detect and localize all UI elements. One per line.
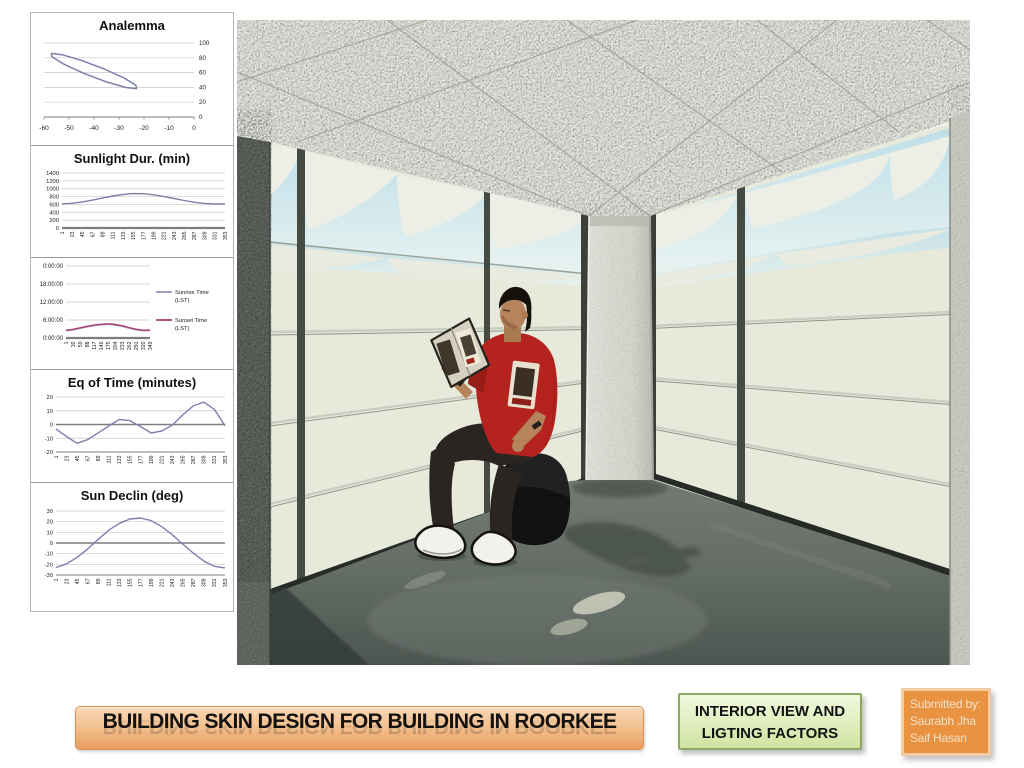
svg-text:0:00:00: 0:00:00 <box>43 336 64 342</box>
svg-text:10: 10 <box>47 409 53 415</box>
svg-text:0:00:00: 0:00:00 <box>43 264 64 270</box>
submitted-box: Submitted by: Saurabh Jha Saif Hasan <box>901 688 991 756</box>
svg-text:177: 177 <box>141 231 147 240</box>
svg-text:-50: -50 <box>64 125 74 132</box>
svg-text:111: 111 <box>111 231 117 239</box>
svg-text:221: 221 <box>162 231 168 240</box>
chart-card-sunrise-sunset: 0:00:006:00:0012:00:0018:00:000:00:00130… <box>31 258 233 370</box>
svg-text:400: 400 <box>49 210 59 216</box>
svg-text:221: 221 <box>159 455 165 464</box>
submitted-name-1: Saurabh Jha <box>910 713 984 730</box>
svg-text:0: 0 <box>192 125 196 132</box>
svg-text:353: 353 <box>223 231 229 240</box>
svg-text:331: 331 <box>212 455 218 464</box>
svg-text:18:00:00: 18:00:00 <box>40 282 64 288</box>
svg-text:-60: -60 <box>39 125 49 132</box>
svg-text:(LST): (LST) <box>175 298 190 304</box>
shirt-print <box>507 360 539 409</box>
svg-text:353: 353 <box>223 578 229 587</box>
chart-title-eq-of-time: Eq of Time (minutes) <box>31 370 233 390</box>
chart-title-analemma: Analemma <box>31 13 233 33</box>
svg-text:-30: -30 <box>114 125 124 132</box>
svg-text:199: 199 <box>151 231 157 240</box>
svg-text:221: 221 <box>159 578 165 587</box>
svg-text:-20: -20 <box>45 450 53 456</box>
svg-text:20: 20 <box>47 395 53 401</box>
svg-text:Sunrise Time: Sunrise Time <box>175 290 209 296</box>
svg-text:199: 199 <box>149 578 155 587</box>
svg-text:1: 1 <box>54 578 60 581</box>
svg-text:133: 133 <box>117 578 123 587</box>
svg-text:-30: -30 <box>45 573 53 579</box>
svg-text:111: 111 <box>107 455 113 463</box>
svg-text:0: 0 <box>199 114 203 121</box>
chart-title-sunlight: Sunlight Dur. (min) <box>31 146 233 166</box>
svg-text:88: 88 <box>85 341 91 347</box>
svg-text:331: 331 <box>212 578 218 587</box>
svg-text:0: 0 <box>50 541 53 547</box>
svg-text:-20: -20 <box>139 125 149 132</box>
svg-text:45: 45 <box>80 231 86 237</box>
svg-text:23: 23 <box>70 231 76 237</box>
sun-declination-chart: -30-20-100102030123456789111133155177199… <box>31 503 233 607</box>
svg-text:309: 309 <box>202 578 208 587</box>
sunlight-duration-chart: 0200400600800100012001400123456789111133… <box>31 166 233 258</box>
svg-text:45: 45 <box>75 578 81 584</box>
svg-text:155: 155 <box>128 455 134 464</box>
svg-text:175: 175 <box>106 341 112 350</box>
svg-text:1: 1 <box>64 341 70 344</box>
analemma-chart: 020406080100-60-50-40-30-20-100 <box>31 33 233 146</box>
svg-text:67: 67 <box>85 455 91 461</box>
svg-text:1200: 1200 <box>46 179 59 185</box>
svg-text:1: 1 <box>60 231 66 234</box>
svg-text:177: 177 <box>138 578 144 587</box>
svg-text:23: 23 <box>64 578 70 584</box>
svg-text:309: 309 <box>202 231 208 240</box>
svg-text:353: 353 <box>223 455 229 464</box>
svg-text:291: 291 <box>134 341 140 350</box>
presentation-slide: Analemma 020406080100-60-50-40-30-20-100… <box>0 0 1024 768</box>
svg-text:349: 349 <box>148 341 154 350</box>
svg-text:800: 800 <box>49 195 59 201</box>
svg-text:30: 30 <box>47 509 53 515</box>
charts-sidebar: Analemma 020406080100-60-50-40-30-20-100… <box>30 12 234 612</box>
svg-text:89: 89 <box>96 578 102 584</box>
sunrise-sunset-chart: 0:00:006:00:0012:00:0018:00:000:00:00130… <box>31 258 233 368</box>
svg-text:-40: -40 <box>89 125 99 132</box>
svg-text:(LST): (LST) <box>175 326 190 332</box>
svg-text:287: 287 <box>191 455 197 464</box>
svg-text:200: 200 <box>49 218 59 224</box>
svg-text:20: 20 <box>47 520 53 526</box>
svg-text:199: 199 <box>149 455 155 464</box>
chart-title-sun-declination: Sun Declin (deg) <box>31 483 233 503</box>
caption-line-1: INTERIOR VIEW AND <box>680 701 860 723</box>
svg-text:265: 265 <box>181 578 187 587</box>
svg-text:6:00:00: 6:00:00 <box>43 318 64 324</box>
chart-card-eq-of-time: Eq of Time (minutes) -20-100102012345678… <box>31 370 233 483</box>
svg-text:30: 30 <box>71 341 77 347</box>
svg-text:1: 1 <box>54 455 60 458</box>
svg-text:243: 243 <box>170 578 176 587</box>
svg-text:10: 10 <box>47 530 53 536</box>
chart-card-sun-declination: Sun Declin (deg) -30-20-1001020301234567… <box>31 483 233 607</box>
svg-text:331: 331 <box>213 231 219 240</box>
svg-text:-10: -10 <box>45 436 53 442</box>
svg-text:100: 100 <box>199 40 210 47</box>
svg-text:287: 287 <box>192 231 198 240</box>
svg-text:20: 20 <box>199 99 206 106</box>
svg-text:0: 0 <box>56 226 59 232</box>
svg-text:233: 233 <box>120 341 126 350</box>
right-corner-wall <box>950 112 970 665</box>
chart-card-analemma: Analemma 020406080100-60-50-40-30-20-100 <box>31 13 233 146</box>
svg-text:155: 155 <box>128 578 134 587</box>
svg-text:243: 243 <box>172 231 178 240</box>
eq-of-time-chart: -20-100102012345678911113315517719922124… <box>31 390 233 483</box>
svg-text:89: 89 <box>96 455 102 461</box>
svg-text:146: 146 <box>99 341 105 350</box>
mullion <box>297 148 305 586</box>
svg-text:45: 45 <box>75 455 81 461</box>
svg-text:155: 155 <box>131 231 137 240</box>
svg-text:1000: 1000 <box>46 187 59 193</box>
svg-text:262: 262 <box>127 341 133 350</box>
svg-text:59: 59 <box>78 341 84 347</box>
svg-text:243: 243 <box>170 455 176 464</box>
svg-text:265: 265 <box>181 455 187 464</box>
svg-text:600: 600 <box>49 202 59 208</box>
svg-text:-10: -10 <box>164 125 174 132</box>
submitted-name-2: Saif Hasan <box>910 730 984 747</box>
svg-text:80: 80 <box>199 55 206 62</box>
svg-text:67: 67 <box>90 231 96 237</box>
svg-text:133: 133 <box>121 231 127 240</box>
svg-text:60: 60 <box>199 70 206 77</box>
svg-text:204: 204 <box>113 341 119 350</box>
caption-box: INTERIOR VIEW AND LIGTING FACTORS <box>678 693 862 750</box>
svg-text:111: 111 <box>107 578 113 586</box>
svg-text:177: 177 <box>138 455 144 464</box>
svg-text:-20: -20 <box>45 562 53 568</box>
slide-title-banner: BUILDING SKIN DESIGN FOR BUILDING IN ROO… <box>75 706 644 750</box>
svg-text:117: 117 <box>92 341 98 349</box>
svg-text:309: 309 <box>202 455 208 464</box>
svg-text:12:00:00: 12:00:00 <box>40 300 64 306</box>
svg-text:23: 23 <box>64 455 70 461</box>
mullion <box>737 168 745 509</box>
slide-title-reflection: BUILDING SKIN DESIGN FOR BUILDING IN ROO… <box>76 714 643 737</box>
svg-text:265: 265 <box>182 231 188 240</box>
svg-text:89: 89 <box>101 231 107 237</box>
submitted-label: Submitted by: <box>910 696 984 713</box>
svg-text:-10: -10 <box>45 552 53 558</box>
svg-text:1400: 1400 <box>46 171 59 177</box>
svg-text:133: 133 <box>117 455 123 464</box>
caption-line-2: LIGTING FACTORS <box>680 723 860 745</box>
svg-text:67: 67 <box>85 578 91 584</box>
chart-card-sunlight: Sunlight Dur. (min) 02004006008001000120… <box>31 146 233 258</box>
svg-text:320: 320 <box>141 341 147 350</box>
svg-text:40: 40 <box>199 84 206 91</box>
svg-text:287: 287 <box>191 578 197 587</box>
interior-render <box>237 20 970 665</box>
svg-text:0: 0 <box>50 423 53 429</box>
svg-text:Sunset Time: Sunset Time <box>175 318 207 324</box>
corner-post <box>237 136 270 665</box>
